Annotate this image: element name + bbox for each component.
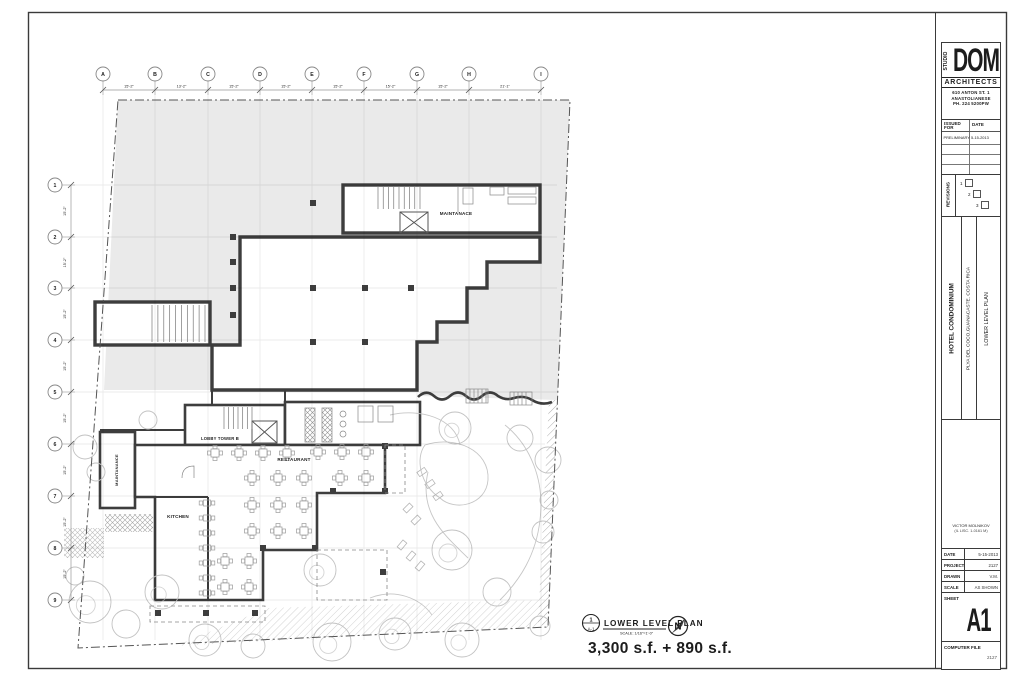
grid-row-number: 9 — [54, 598, 57, 604]
title-block: STUDIO DOM ARCHITECTS 610 ANTON ST. 1 AN… — [941, 42, 1001, 670]
project-value: 2127 — [988, 563, 998, 568]
column — [310, 200, 316, 206]
date-col-label: DATE — [972, 122, 984, 127]
lounge-chair — [397, 540, 407, 550]
tree — [432, 530, 472, 570]
restaurant-label: RESTAURANT — [277, 457, 310, 462]
lounge-chair — [411, 515, 421, 525]
drawn-value: V.M. — [990, 574, 998, 579]
column — [362, 339, 368, 345]
tree — [73, 435, 97, 459]
firm-sub-label: ARCHITECTS — [942, 77, 1000, 88]
column — [252, 610, 258, 616]
engineer-section: VICTOR MOLNIKOV (IL LISC. 1-0161 M) — [942, 419, 1000, 548]
row-dim-label: 15'-2" — [63, 309, 67, 319]
computer-file-section: COMPUTER FILE 2127 — [942, 641, 1000, 669]
row-dim-label: 15'-2" — [63, 413, 67, 423]
column-dim-label: 15'-2" — [438, 85, 448, 89]
revision-1: 1 — [960, 181, 963, 186]
grid-row-number: 7 — [54, 494, 57, 500]
column — [310, 339, 316, 345]
lounge-chair — [417, 467, 427, 476]
grid-row-number: 8 — [54, 546, 57, 552]
firm-logo: DOM — [952, 43, 1000, 80]
column — [155, 610, 161, 616]
date-label: DATE — [944, 552, 955, 557]
grid-row-number: 3 — [54, 286, 57, 292]
sheet-label: SHEET — [944, 596, 959, 601]
grid-row-number: 1 — [54, 183, 57, 189]
info-row-project: PROJECT 2127 — [942, 559, 1000, 570]
lobby-label: LOBBY TOWER B — [201, 436, 239, 441]
callout-number: 1 — [589, 618, 592, 624]
grid-column-letter: A — [101, 72, 105, 78]
revision-2: 2 — [968, 192, 971, 197]
drawn-label: DRAWN — [944, 574, 960, 579]
project-location: PLYA DEL COCO,GUANACASTE. COSTA RICA — [966, 218, 971, 418]
tree — [304, 554, 336, 586]
kitchen-label: KITCHEN — [167, 514, 189, 519]
column — [362, 285, 368, 291]
tree — [69, 581, 111, 623]
engineer-name: VICTOR MOLNIKOV — [942, 523, 1000, 528]
firm-address: 610 ANTON ST. 1 ANASTOLIANESE PH. 224 52… — [942, 90, 1000, 107]
maintenance-left-label: MAINTANANCE — [114, 454, 119, 486]
grid-column-letter: F — [362, 72, 365, 78]
issue-header-row: ISSUED FOR DATE — [942, 119, 1000, 131]
grid-row-number: 6 — [54, 442, 57, 448]
column — [230, 259, 236, 265]
drawing-sheet: MAINTANACE LOBBY TOWER B RESTAURANT KITC… — [0, 0, 1024, 683]
tree — [139, 411, 157, 429]
row-dim-label: 15'-2" — [63, 206, 67, 216]
grid-column-letter: C — [206, 72, 210, 78]
grid-row-number: 4 — [54, 338, 57, 344]
maintenance-room-label: MAINTANACE — [440, 211, 473, 216]
floor-plan-svg: MAINTANACE LOBBY TOWER B RESTAURANT KITC… — [0, 0, 1024, 683]
column — [330, 488, 336, 494]
tree — [112, 610, 140, 638]
sheet-number: A1 — [966, 601, 990, 640]
column-dim-label: 21'-1" — [500, 85, 510, 89]
column-dim-label: 15'-2" — [333, 85, 343, 89]
scale-value: AS SHOWN — [975, 585, 998, 590]
revision-3: 3 — [976, 203, 979, 208]
column — [230, 312, 236, 318]
project-title-section: HOTEL CONDOMINIUM PLYA DEL COCO,GUANACAS… — [942, 216, 1000, 419]
project-name: HOTEL CONDOMINIUM — [948, 219, 955, 419]
date-value: 5-15-2013 — [978, 552, 998, 557]
address-line-3: PH. 224 5200PW — [942, 101, 1000, 107]
grid-column-letter: B — [153, 72, 157, 78]
column — [203, 610, 209, 616]
plan-title: LOWER LEVEL PLAN — [604, 619, 704, 628]
maintenance-room — [343, 185, 540, 233]
tree — [66, 567, 84, 585]
column — [230, 234, 236, 240]
column — [408, 285, 414, 291]
scale-label: SCALE — [944, 585, 959, 590]
column — [230, 285, 236, 291]
grid-row-number: 2 — [54, 235, 57, 241]
lounge-chairs — [397, 467, 443, 571]
info-row-scale: SCALE AS SHOWN — [942, 581, 1000, 592]
engineer-license: (IL LISC. 1-0161 M) — [942, 529, 1000, 533]
lounge-chair — [415, 561, 425, 571]
row-dim-label: 15'-2" — [63, 569, 67, 579]
column-dim-label: 15'-2" — [386, 85, 396, 89]
info-row-drawn: DRAWN V.M. — [942, 570, 1000, 581]
column — [310, 285, 316, 291]
column — [380, 569, 386, 575]
lounge-chair — [406, 551, 416, 561]
sheet-title-vertical: LOWER LEVEL PLAN — [984, 219, 990, 419]
plan-callout: 1 A-1 LOWER LEVEL PLAN SCALE: 1/16"=1'-0… — [583, 615, 733, 658]
grid-column-letter: D — [258, 72, 262, 78]
grid-column-letter: E — [310, 72, 314, 78]
plan-scale: SCALE: 1/16"=1'-0" — [620, 632, 654, 636]
row-dim-label: 15'-2" — [63, 361, 67, 371]
callout-sheet: A-1 — [588, 627, 595, 632]
info-row-date: DATE 5-15-2013 — [942, 548, 1000, 559]
project-label: PROJECT — [944, 563, 964, 568]
revisions-section: REVISIONS 1 2 3 — [942, 174, 1000, 216]
computer-file-value: 2127 — [987, 655, 997, 661]
grid-column-letter: G — [415, 72, 419, 78]
west-stair-block — [95, 302, 210, 345]
area-text: 3,300 s.f. + 890 s.f. — [588, 640, 732, 657]
lounge-chair — [403, 503, 413, 513]
column-dim-label: 13'-2" — [177, 85, 187, 89]
row-dim-label: 15'-2" — [63, 517, 67, 527]
column-dim-label: 15'-2" — [281, 85, 291, 89]
grid-row-number: 5 — [54, 390, 57, 396]
sheet-section: SHEET A1 — [942, 592, 1000, 641]
column-dim-label: 15'-2" — [229, 85, 239, 89]
tree — [439, 412, 471, 444]
column — [260, 545, 266, 551]
issue-row: PRELIMINARY 5-15-2013 — [942, 131, 1000, 144]
grid-column-letter: H — [467, 72, 471, 78]
crosshatch-patch-1 — [105, 514, 153, 532]
issue-date: 5-15-2013 — [971, 135, 989, 141]
tree — [507, 425, 533, 451]
column-dim-label: 15'-2" — [124, 85, 134, 89]
computer-file-label: COMPUTER FILE — [944, 645, 981, 650]
crosshatch-patch-2 — [64, 528, 104, 558]
south-hatched-walk — [175, 600, 546, 646]
row-dim-label: 15'-2" — [63, 257, 67, 267]
row-dim-label: 15'-2" — [63, 465, 67, 475]
